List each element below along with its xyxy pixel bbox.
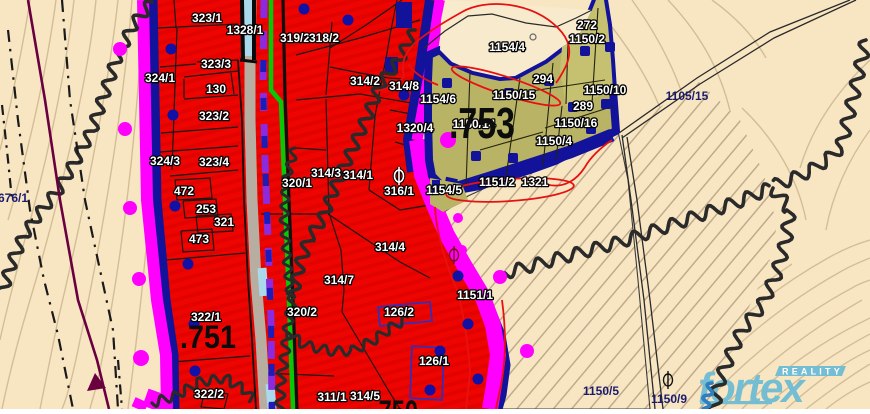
svg-text:320/2: 320/2 [287, 305, 317, 319]
svg-text:1151/1: 1151/1 [457, 288, 493, 302]
svg-text:314/8: 314/8 [389, 79, 419, 93]
svg-text:289: 289 [573, 99, 593, 113]
svg-text:.751: .751 [180, 319, 236, 355]
svg-text:1151/2: 1151/2 [479, 175, 515, 189]
svg-text:1105/15: 1105/15 [666, 89, 709, 103]
svg-text:319/2: 319/2 [280, 31, 310, 45]
svg-text:322/2: 322/2 [194, 387, 224, 401]
svg-text:1150/4: 1150/4 [536, 134, 572, 148]
svg-text:311/1: 311/1 [317, 390, 347, 404]
svg-text:1154/4: 1154/4 [489, 40, 525, 54]
svg-text:314/3: 314/3 [311, 166, 341, 180]
svg-text:324/1: 324/1 [145, 71, 175, 85]
svg-text:323/4: 323/4 [199, 155, 229, 169]
svg-text:REALITY: REALITY [782, 367, 843, 377]
svg-text:1321: 1321 [522, 175, 549, 189]
svg-text:1328/1: 1328/1 [227, 23, 264, 37]
svg-text:294: 294 [533, 72, 553, 86]
svg-text:1150/10: 1150/10 [584, 83, 627, 97]
svg-text:323/3: 323/3 [201, 57, 231, 71]
svg-text:323/1: 323/1 [192, 11, 222, 25]
svg-text:472: 472 [174, 184, 194, 198]
svg-text:314/2: 314/2 [350, 74, 380, 88]
svg-text:.753: .753 [449, 99, 515, 148]
svg-text:314/1: 314/1 [343, 168, 373, 182]
svg-text:323/2: 323/2 [199, 109, 229, 123]
svg-text:1150/9: 1150/9 [651, 392, 687, 406]
svg-text:314/4: 314/4 [375, 240, 405, 254]
svg-text:676/1: 676/1 [0, 191, 28, 205]
svg-text:126/2: 126/2 [384, 305, 414, 319]
svg-text:1150/5: 1150/5 [583, 384, 619, 398]
svg-text:126/1: 126/1 [419, 354, 449, 368]
svg-text:1150/16: 1150/16 [555, 116, 598, 130]
svg-text:1154/5: 1154/5 [426, 183, 462, 197]
svg-text:253: 253 [196, 202, 216, 216]
svg-text:130: 130 [206, 82, 226, 96]
svg-text:1150/2: 1150/2 [569, 32, 605, 46]
svg-text:.750: .750 [372, 394, 418, 409]
svg-text:316/1: 316/1 [384, 184, 414, 198]
svg-text:320/1: 320/1 [282, 176, 312, 190]
svg-text:1320/4: 1320/4 [397, 121, 434, 135]
svg-text:272: 272 [577, 18, 597, 32]
svg-text:314/7: 314/7 [324, 273, 354, 287]
svg-text:318/2: 318/2 [309, 31, 339, 45]
svg-text:473: 473 [189, 232, 209, 246]
svg-text:321: 321 [214, 215, 234, 229]
svg-text:324/3: 324/3 [150, 154, 180, 168]
